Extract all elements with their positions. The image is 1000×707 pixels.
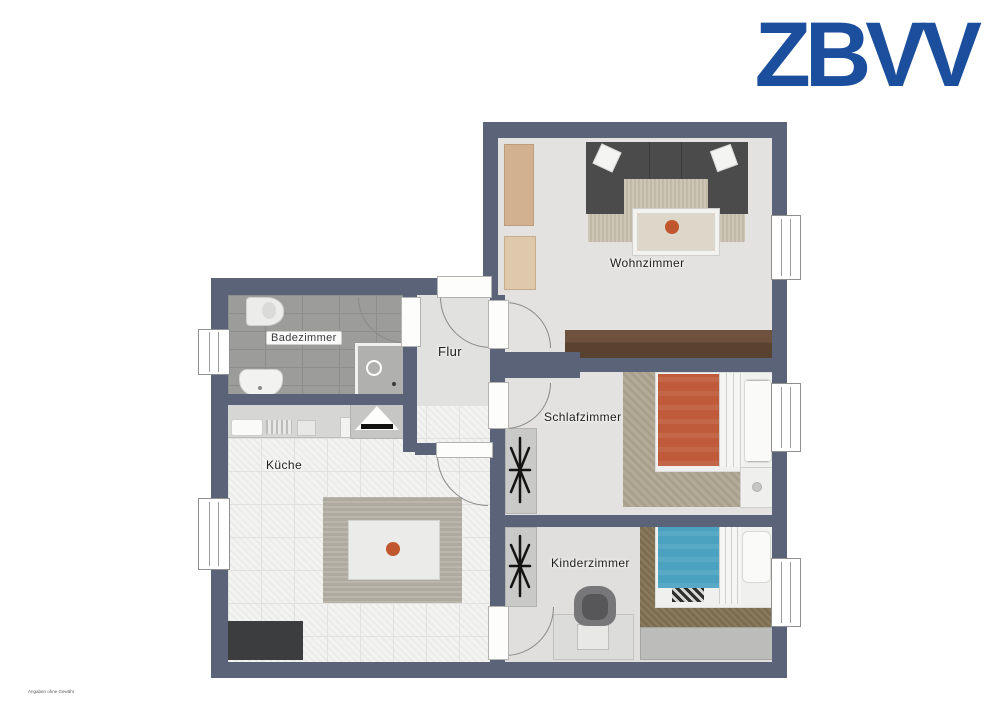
fine-print: Angaben ohne Gewähr <box>28 689 74 694</box>
plant-icon <box>508 532 532 600</box>
zbvv-logo: ZBVV <box>755 18 976 93</box>
wall-bad-bottom <box>228 394 417 405</box>
nightstand-knob <box>752 482 762 492</box>
room-label-kueche: Küche <box>266 458 302 472</box>
bed-folded-blanket <box>719 373 743 467</box>
kids-wardrobe <box>640 627 774 660</box>
kitchen-appliance-small <box>297 420 316 436</box>
window-wohnzimmer <box>771 215 801 280</box>
window-pane <box>781 562 791 624</box>
room-label-flur: Flur <box>438 344 462 359</box>
kitchen-dark-cabinet <box>227 621 303 660</box>
desk-drawer <box>577 624 609 650</box>
plant-icon <box>508 434 532 506</box>
bed-duvet-orange <box>658 374 720 466</box>
window-kueche <box>198 498 230 570</box>
kids-bed-duvet-teal <box>658 526 720 588</box>
schlafzimmer-door <box>488 382 509 429</box>
room-label-schlafzimmer: Schlafzimmer <box>544 410 621 424</box>
kids-bed-pillow <box>742 531 771 583</box>
sideboard <box>565 330 772 358</box>
kinderzimmer-door <box>488 606 509 660</box>
kitchen-drainer <box>266 420 292 434</box>
window-kinderzimmer <box>771 558 801 627</box>
kids-bed-folded-blanket <box>719 526 741 604</box>
window-schlafzimmer <box>771 383 801 452</box>
room-label-wohnzimmer: Wohnzimmer <box>610 256 684 270</box>
shower-knob-icon <box>366 360 382 376</box>
badezimmer-door <box>401 297 421 347</box>
coffee-table-flowers-icon <box>665 220 679 234</box>
window-pane <box>781 219 791 277</box>
window-pane <box>781 387 791 449</box>
bathroom-sink <box>239 369 283 396</box>
wall-schlaf-kinder-divider <box>505 515 787 527</box>
floorplan-page: ZBVV Angaben ohne Gewähr <box>0 0 1000 707</box>
toilet-bowl <box>262 302 276 319</box>
wall-wohnzimmer-left <box>483 122 498 295</box>
wall-wohnzimmer-top <box>483 122 787 138</box>
shower-head-dot <box>392 382 396 386</box>
window-pane <box>209 332 220 373</box>
room-label-badezimmer: Badezimmer <box>266 331 342 345</box>
kitchen-sink <box>231 419 263 436</box>
wall-center-bottom-stub <box>490 657 505 678</box>
desk-chair-seat <box>582 594 608 620</box>
wohnzimmer-door <box>488 300 509 349</box>
room-label-kinderzimmer: Kinderzimmer <box>551 556 630 570</box>
entrance-door <box>437 276 492 298</box>
sink-faucet-dot <box>258 386 262 390</box>
window-badezimmer <box>198 329 230 375</box>
wall-wohn-schlaf-divider <box>505 358 787 372</box>
wall-flur-kueche-stub <box>415 443 437 455</box>
shower <box>355 343 408 400</box>
wall-cabinet-short <box>504 236 536 290</box>
bed-pillow <box>744 379 772 463</box>
wall-cabinet-tall <box>504 144 534 226</box>
stove-bar <box>361 424 393 429</box>
kueche-door <box>436 442 493 458</box>
table-flowers-icon <box>386 542 400 556</box>
window-pane <box>209 502 220 566</box>
kids-bed-pattern-blanket <box>672 588 704 602</box>
